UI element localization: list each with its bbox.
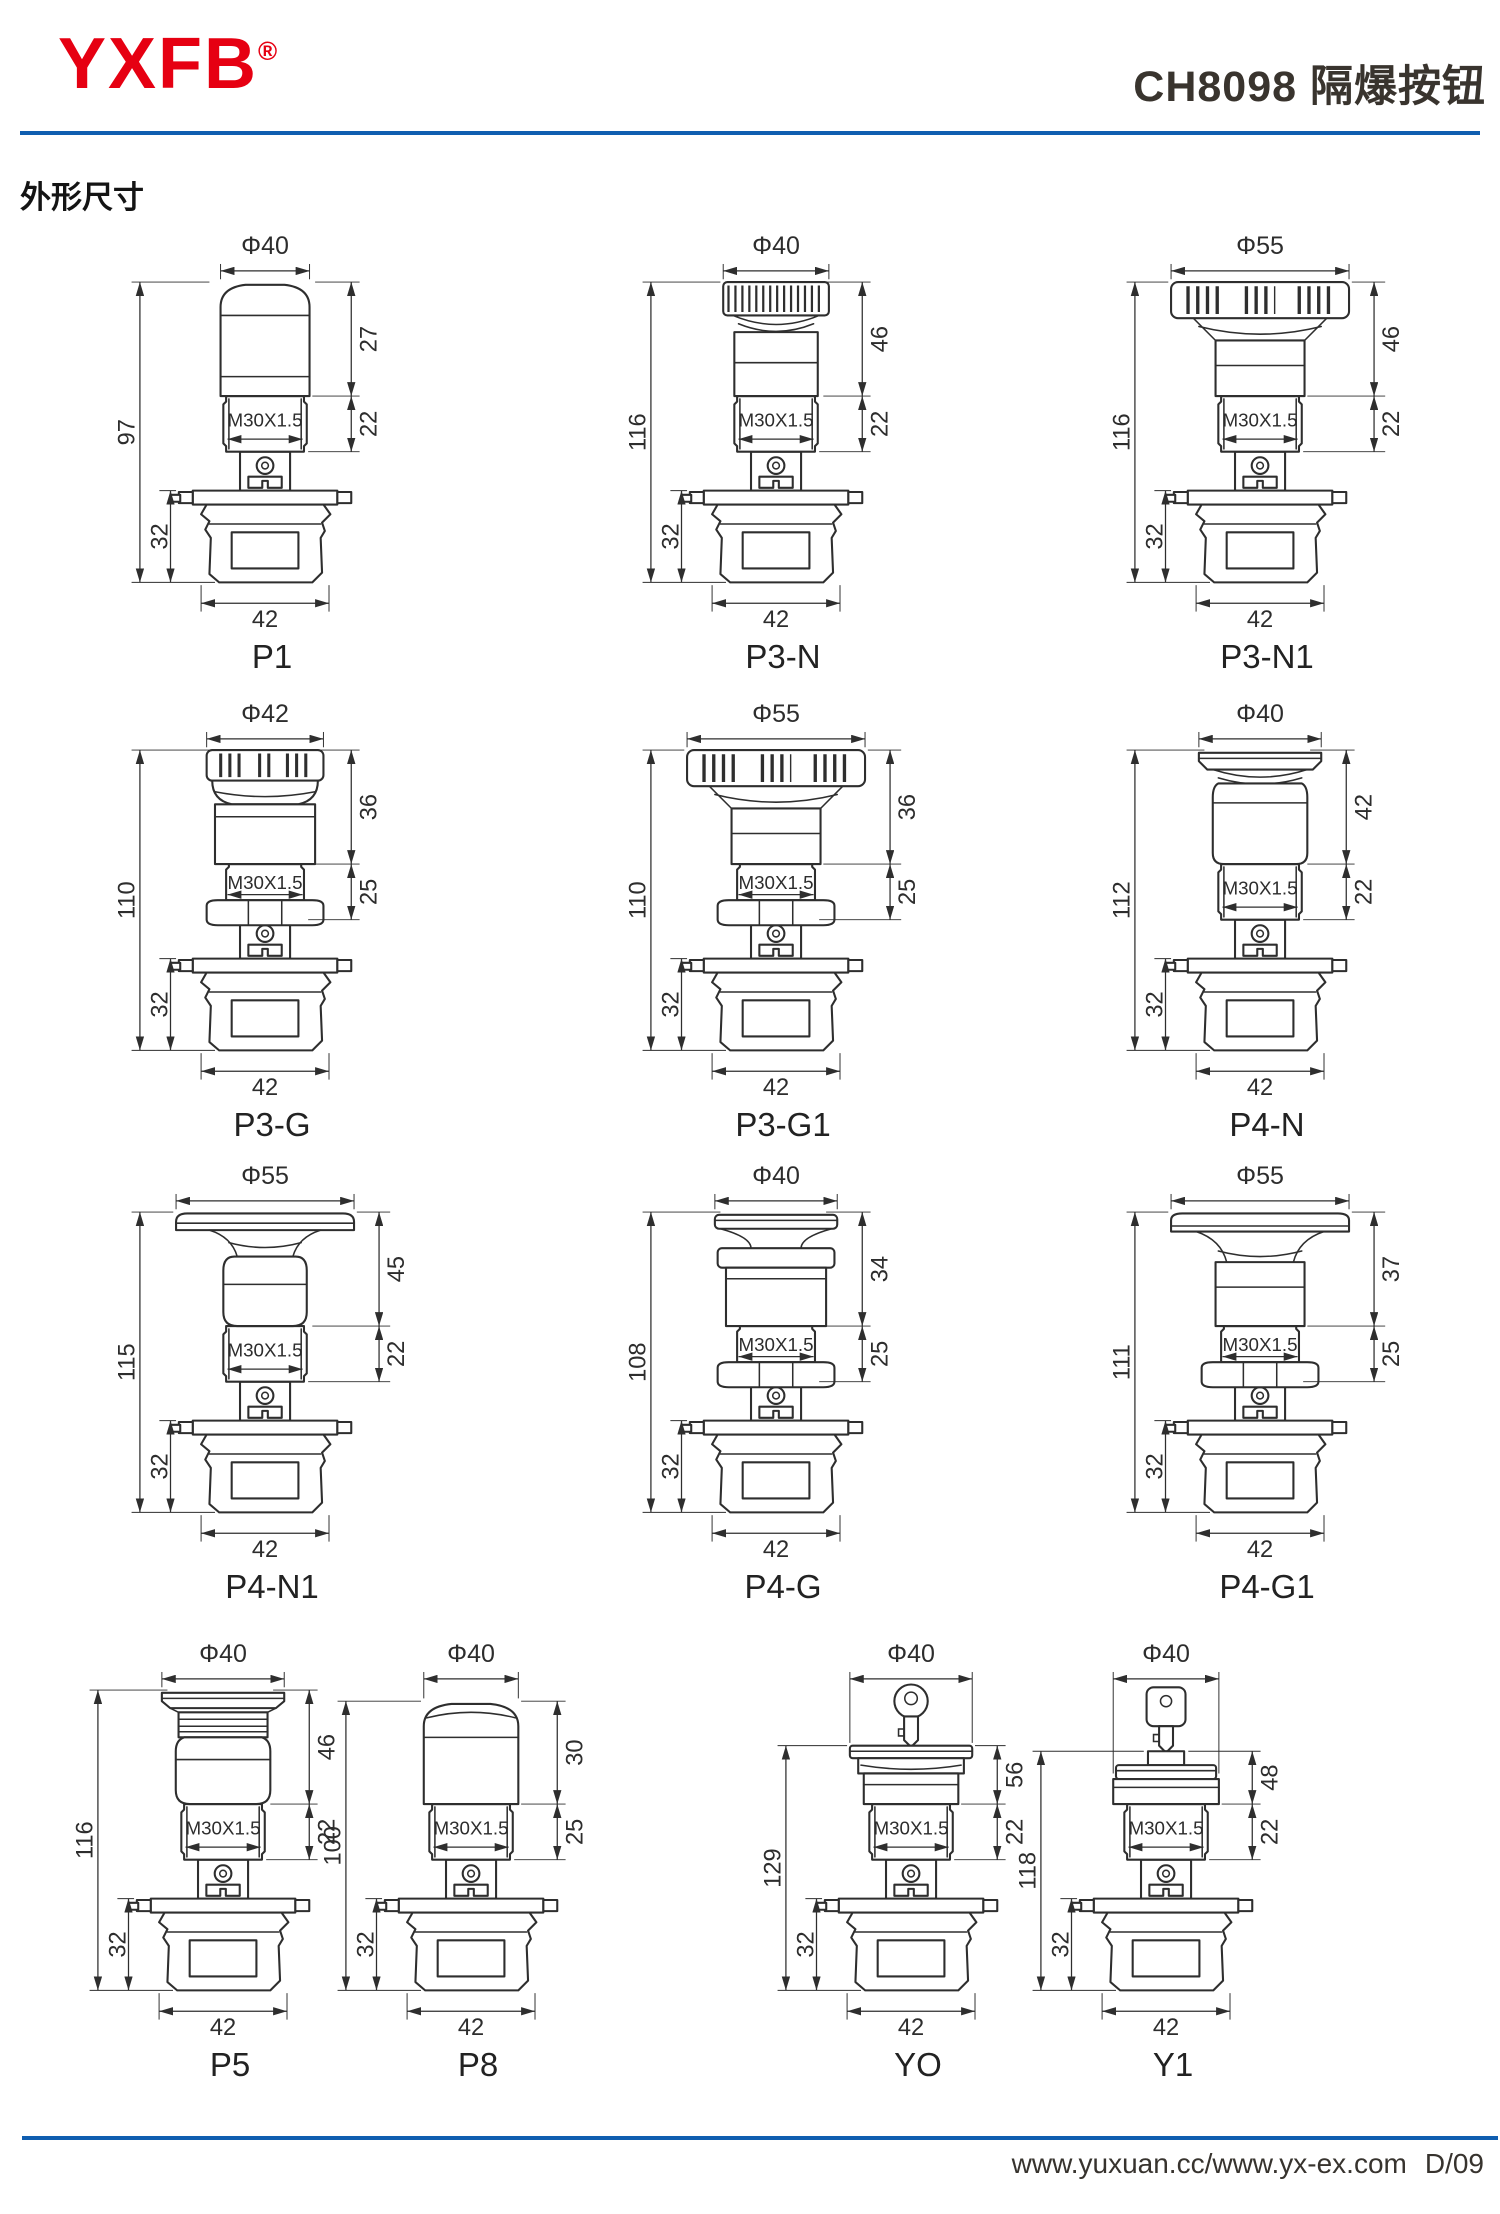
dim-label-base-width: 42: [763, 1537, 789, 1563]
dim-label-total-height: 116: [1109, 413, 1135, 451]
thread-spec-label: M30X1.5: [738, 872, 813, 893]
dim-label-head-height: 36: [356, 794, 382, 820]
dim-label-thread-height: 22: [356, 411, 382, 437]
dim-label-total-height: 129: [760, 1848, 786, 1887]
key-switch-round-bow-head: [850, 1684, 972, 1804]
dim-label-thread-height: 25: [356, 879, 382, 905]
dim-label-diameter: Φ40: [887, 1640, 935, 1668]
dim-label-total-height: 116: [625, 413, 651, 451]
dim-label-lower-height: 32: [659, 991, 685, 1017]
drawing-y1: Φ40 48 22 118 32 42 M30X1.5: [1013, 1640, 1333, 2046]
dim-label-diameter: Φ40: [1236, 700, 1284, 728]
key-switch-square-bow-head: [1113, 1687, 1219, 1804]
footer-page-number: D/09: [1425, 2148, 1484, 2179]
dim-label-base-width: 42: [1247, 1075, 1273, 1101]
figure-caption: P1: [112, 638, 432, 676]
dim-label-base-width: 42: [252, 1537, 278, 1563]
dim-label-lower-height: 32: [1143, 523, 1169, 549]
drawing-p4g: Φ40 34 25 108 32 42 M30X1.5: [623, 1162, 943, 1568]
figure-p1: Φ40 27 22 97 32 42 M30X1.5 P1: [112, 232, 432, 676]
dim-label-base-width: 42: [252, 1075, 278, 1101]
drawing-p3n: Φ40 46 22 116 32 42 M30X1.5: [623, 232, 943, 638]
figure-caption: P4-G1: [1107, 1568, 1427, 1606]
switch-body: [171, 920, 352, 1051]
top-dimension: [687, 732, 865, 747]
dim-label-thread-height: 22: [1351, 879, 1377, 905]
thread-spec-label: M30X1.5: [227, 410, 302, 431]
dim-label-total-height: 97: [114, 419, 140, 445]
page-title: CH8098 隔爆按钮: [1133, 52, 1486, 114]
dim-label-lower-height: 32: [1049, 1931, 1075, 1957]
top-dimension: [715, 1194, 837, 1209]
dim-label-head-height: 37: [1379, 1256, 1405, 1282]
figure-caption: P4-N: [1107, 1106, 1427, 1144]
dim-label-diameter: Φ55: [752, 700, 800, 728]
drawing-p4g1: Φ55 37 25 111 32 42 M30X1.5: [1107, 1162, 1427, 1568]
dim-label-diameter: Φ40: [241, 232, 289, 260]
section-title: 外形尺寸: [20, 172, 144, 217]
thread-spec-label: M30X1.5: [873, 1818, 948, 1839]
top-dimension: [1199, 732, 1321, 747]
top-dimension: [1171, 1194, 1349, 1209]
switch-body: [682, 920, 863, 1051]
figure-y1: Φ40 48 22 118 32 42 M30X1.5 Y1: [1013, 1640, 1333, 2084]
thread-spec-label: M30X1.5: [738, 410, 813, 431]
dim-label-diameter: Φ55: [1236, 232, 1284, 260]
figure-caption: P4-N1: [112, 1568, 432, 1606]
dome-button-head: [221, 285, 310, 396]
figure-p4g1: Φ55 37 25 111 32 42 M30X1.5 P4-G1: [1107, 1162, 1427, 1606]
figure-p3g1: Φ55 36 25 110 32 42 M30X1.5 P3-G1: [623, 700, 943, 1144]
footer-rule: [22, 2136, 1498, 2140]
dim-label-lower-height: 32: [354, 1931, 380, 1957]
thread-spec-label: M30X1.5: [433, 1818, 508, 1839]
dim-label-thread-height: 25: [562, 1819, 588, 1845]
dim-label-total-height: 110: [114, 881, 140, 919]
footer-urls: www.yuxuan.cc/www.yx-ex.com: [1012, 2148, 1407, 2179]
switch-body: [1072, 1860, 1253, 1991]
thread-spec-label: M30X1.5: [1222, 1334, 1297, 1355]
drawing-p3n1: Φ55 46 22 116 32 42 M30X1.5: [1107, 232, 1427, 638]
dim-label-total-height: 112: [1109, 881, 1135, 919]
thread-spec-label: M30X1.5: [1128, 1818, 1203, 1839]
top-dimension: [221, 264, 310, 279]
dim-label-head-height: 46: [867, 326, 893, 352]
dim-label-base-width: 42: [763, 1075, 789, 1101]
header-rule: [20, 131, 1480, 135]
thread-spec-label: M30X1.5: [738, 1334, 813, 1355]
drawing-p1: Φ40 27 22 97 32 42 M30X1.5: [112, 232, 432, 638]
dim-label-head-height: 45: [384, 1256, 410, 1282]
thread-spec-label: M30X1.5: [185, 1818, 260, 1839]
switch-body: [1166, 920, 1347, 1051]
drawing-p3g: Φ42 36 25 110 32 42 M30X1.5: [112, 700, 432, 1106]
dim-label-thread-height: 22: [384, 1341, 410, 1367]
figure-caption: P3-G: [112, 1106, 432, 1144]
dim-label-diameter: Φ40: [752, 232, 800, 260]
dim-label-head-height: 46: [1379, 326, 1405, 352]
switch-body: [129, 1860, 310, 1991]
dim-label-lower-height: 32: [148, 991, 174, 1017]
drawing-p4n: Φ40 42 22 112 32 42 M30X1.5: [1107, 700, 1427, 1106]
flat-wide-mushroom-head: [176, 1213, 354, 1326]
dim-label-head-height: 48: [1257, 1765, 1283, 1791]
switch-body: [171, 1382, 352, 1513]
dim-label-base-width: 42: [458, 2015, 484, 2041]
dim-label-lower-height: 32: [1143, 1453, 1169, 1479]
dim-label-base-width: 42: [1153, 2015, 1179, 2041]
switch-body: [1166, 1382, 1347, 1513]
dim-label-thread-height: 25: [867, 1341, 893, 1367]
switch-body: [682, 452, 863, 583]
figure-p4n: Φ40 42 22 112 32 42 M30X1.5 P4-N: [1107, 700, 1427, 1144]
catalog-page: YXFB® CH8098 隔爆按钮 外形尺寸 Φ40 27 22 97 32 4…: [0, 0, 1500, 2214]
switch-body: [682, 1382, 863, 1513]
switch-body: [377, 1860, 558, 1991]
drawing-p4n1: Φ55 45 22 115 32 42 M30X1.5: [112, 1162, 432, 1568]
dim-label-diameter: Φ40: [752, 1162, 800, 1190]
dim-label-lower-height: 32: [794, 1931, 820, 1957]
dim-label-thread-height: 22: [1379, 411, 1405, 437]
dim-label-total-height: 111: [1109, 1344, 1135, 1380]
top-dimension: [162, 1672, 284, 1687]
dim-label-thread-height: 25: [1379, 1341, 1405, 1367]
dim-label-base-width: 42: [252, 607, 278, 633]
top-dimension: [1171, 264, 1349, 279]
top-dimension: [424, 1672, 519, 1698]
dim-label-thread-height: 25: [895, 879, 921, 905]
knurled-mushroom-head: [723, 282, 829, 396]
slotted-wide-mushroom-head: [687, 750, 865, 864]
figure-p3n1: Φ55 46 22 116 32 42 M30X1.5 P3-N1: [1107, 232, 1427, 676]
round-button-head: [424, 1704, 519, 1804]
dim-label-head-height: 27: [356, 326, 382, 352]
figure-p4n1: Φ55 45 22 115 32 42 M30X1.5 P4-N1: [112, 1162, 432, 1606]
thread-spec-label: M30X1.5: [227, 872, 302, 893]
dim-label-base-width: 42: [1247, 607, 1273, 633]
dim-label-diameter: Φ40: [447, 1640, 495, 1668]
dim-label-base-width: 42: [1247, 1537, 1273, 1563]
dim-label-lower-height: 32: [148, 1453, 174, 1479]
figure-caption: P4-G: [623, 1568, 943, 1606]
dim-label-diameter: Φ55: [241, 1162, 289, 1190]
dim-label-diameter: Φ40: [199, 1640, 247, 1668]
dim-label-diameter: Φ55: [1236, 1162, 1284, 1190]
dim-label-base-width: 42: [763, 607, 789, 633]
figure-caption: P3-N: [623, 638, 943, 676]
dim-label-total-height: 118: [1015, 1852, 1041, 1890]
flanged-cylinder-head: [1199, 753, 1321, 864]
dim-label-total-height: 115: [114, 1343, 140, 1381]
figure-p3g: Φ42 36 25 110 32 42 M30X1.5 P3-G: [112, 700, 432, 1144]
spool-button-head: [715, 1215, 837, 1326]
dim-label-lower-height: 32: [659, 523, 685, 549]
figure-caption: P8: [318, 2046, 638, 2084]
figure-caption: Y1: [1013, 2046, 1333, 2084]
figure-p4g: Φ40 34 25 108 32 42 M30X1.5 P4-G: [623, 1162, 943, 1606]
figure-caption: P3-N1: [1107, 638, 1427, 676]
dim-label-head-height: 36: [895, 794, 921, 820]
thread-spec-label: M30X1.5: [1222, 878, 1297, 899]
switch-body: [171, 452, 352, 583]
footer: www.yuxuan.cc/www.yx-ex.comD/09: [1012, 2148, 1484, 2180]
thread-spec-label: M30X1.5: [1222, 410, 1297, 431]
dim-label-head-height: 34: [867, 1256, 893, 1282]
figure-caption: P3-G1: [623, 1106, 943, 1144]
registered-mark-icon: ®: [258, 36, 277, 66]
thread-spec-label: M30X1.5: [227, 1340, 302, 1361]
top-dimension: [176, 1194, 354, 1209]
figure-p8: Φ40 30 25 100 32 42 M30X1.5 P8: [318, 1640, 638, 2084]
dim-label-thread-height: 22: [867, 411, 893, 437]
dim-label-diameter: Φ42: [241, 700, 289, 728]
dim-label-lower-height: 32: [148, 523, 174, 549]
flanged-ring-cylinder-head: [162, 1693, 284, 1804]
switch-body: [817, 1860, 998, 1991]
dim-label-total-height: 100: [320, 1826, 346, 1865]
dim-label-total-height: 108: [625, 1343, 651, 1382]
switch-body: [1166, 452, 1347, 583]
dim-label-base-width: 42: [898, 2015, 924, 2041]
dim-label-lower-height: 32: [1143, 991, 1169, 1017]
slotted-wide-mushroom-head: [1171, 282, 1349, 396]
dim-label-total-height: 110: [625, 881, 651, 919]
dim-label-base-width: 42: [210, 2015, 236, 2041]
brand-logo: YXFB®: [58, 28, 277, 100]
slotted-cap-head: [207, 750, 324, 864]
top-dimension: [207, 732, 324, 747]
dim-label-head-height: 30: [562, 1739, 588, 1765]
top-dimension: [723, 264, 829, 279]
dim-label-lower-height: 32: [659, 1453, 685, 1479]
dim-label-thread-height: 22: [1257, 1819, 1283, 1845]
dim-label-total-height: 116: [72, 1821, 98, 1859]
dim-label-lower-height: 32: [106, 1931, 132, 1957]
drawing-p3g1: Φ55 36 25 110 32 42 M30X1.5: [623, 700, 943, 1106]
wide-mushroom-head: [1171, 1213, 1349, 1326]
figure-p3n: Φ40 46 22 116 32 42 M30X1.5 P3-N: [623, 232, 943, 676]
drawing-p8: Φ40 30 25 100 32 42 M30X1.5: [318, 1640, 638, 2046]
dim-label-head-height: 42: [1351, 794, 1377, 820]
dim-label-diameter: Φ40: [1142, 1640, 1190, 1668]
